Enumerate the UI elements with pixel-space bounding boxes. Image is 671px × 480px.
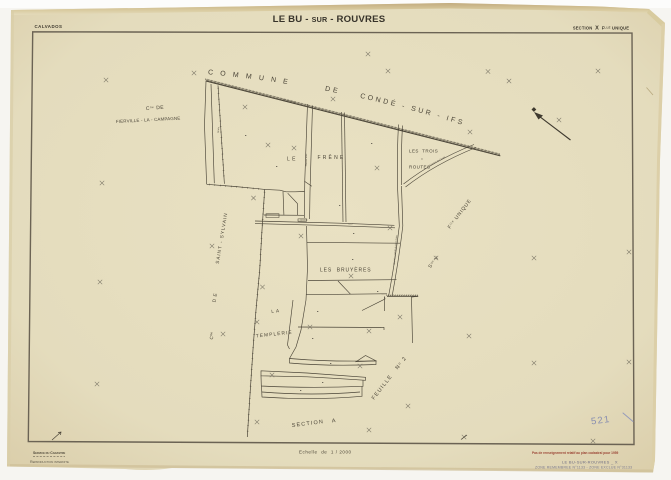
svg-text:LE BU-SUR-ROUVRES _ X: LE BU-SUR-ROUVRES _ X bbox=[562, 459, 618, 464]
svg-text:Chemin rural: Chemin rural bbox=[305, 153, 308, 166]
svg-text:Echelle de 1 / 2000: Echelle de 1 / 2000 bbox=[299, 449, 352, 454]
svg-text:L A: L A bbox=[271, 308, 280, 314]
svg-text:SERVICE DU CADASTRE: SERVICE DU CADASTRE bbox=[33, 451, 66, 455]
svg-text:x: x bbox=[421, 157, 423, 161]
svg-text:ZONE REMEMBREE N°1133 - ZONE E: ZONE REMEMBREE N°1133 - ZONE EXCLUE N°31… bbox=[535, 466, 632, 470]
svg-text:REPRODUCTION INTERDITE: REPRODUCTION INTERDITE bbox=[30, 460, 69, 464]
svg-text:CALVADOS: CALVADOS bbox=[35, 24, 63, 29]
svg-text:LES TROIS: LES TROIS bbox=[409, 149, 438, 154]
svg-text:rural: rural bbox=[348, 222, 353, 225]
svg-text:LE BU - SUR - ROUVRES: LE BU - SUR - ROUVRES bbox=[273, 14, 386, 25]
svg-text:Cne DE: Cne DE bbox=[146, 104, 165, 112]
svg-text:Route: Route bbox=[217, 126, 220, 133]
svg-text:F R Ê N E: F R Ê N E bbox=[318, 153, 344, 161]
svg-text:LES BRUYÈRES: LES BRUYÈRES bbox=[320, 267, 371, 274]
svg-text:ROUTES: ROUTES bbox=[409, 165, 430, 170]
svg-text:Pas de renseignement relatif a: Pas de renseignement relatif au plan cad… bbox=[532, 451, 618, 455]
svg-text:Chemin: Chemin bbox=[300, 219, 308, 221]
svg-text:L E: L E bbox=[287, 157, 296, 163]
